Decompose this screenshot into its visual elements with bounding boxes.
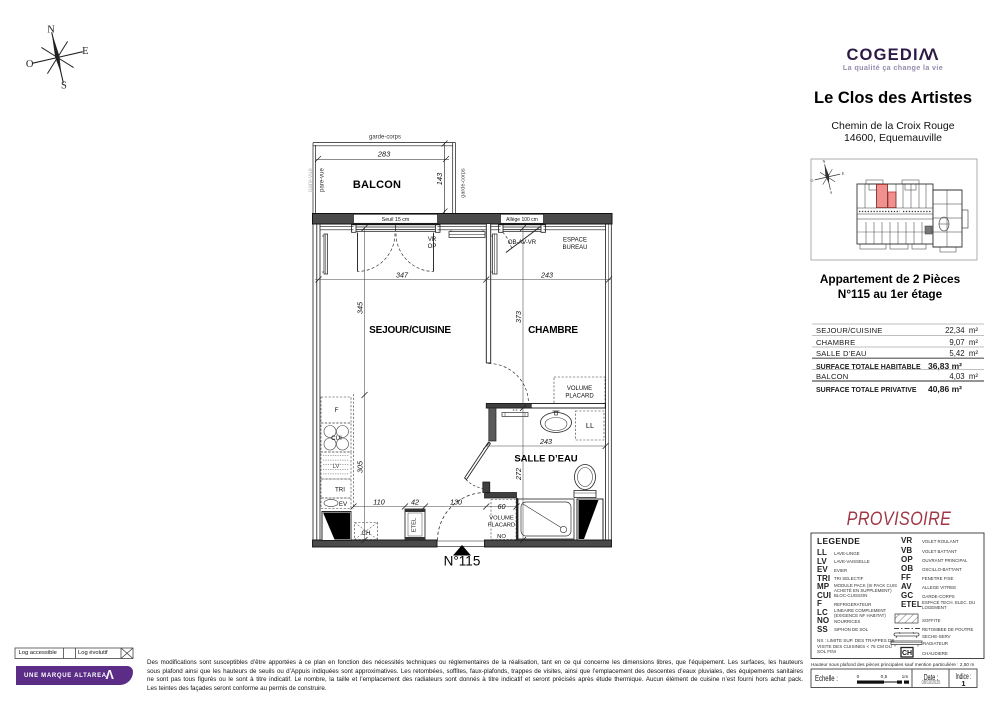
- svg-text:CHAMBRE: CHAMBRE: [528, 325, 578, 336]
- svg-text:143: 143: [435, 172, 444, 185]
- svg-text:O: O: [810, 178, 813, 183]
- svg-text:TRI: TRI: [335, 487, 345, 494]
- svg-text:garde-corps: garde-corps: [369, 135, 401, 141]
- svg-text:BALCON: BALCON: [353, 179, 401, 191]
- svg-text:N: N: [47, 25, 55, 36]
- svg-text:E: E: [82, 46, 88, 57]
- svg-text:OB-AV-VR: OB-AV-VR: [508, 240, 537, 246]
- svg-text:LV: LV: [332, 463, 340, 470]
- svg-text:ETEL: ETEL: [412, 517, 418, 532]
- svg-text:N: N: [822, 159, 825, 164]
- svg-text:CUI: CUI: [331, 435, 342, 442]
- svg-text:283: 283: [377, 150, 391, 159]
- svg-text:S: S: [830, 190, 832, 195]
- svg-text:CH: CH: [362, 530, 371, 537]
- svg-text:SEJOUR/CUISINE: SEJOUR/CUISINE: [369, 325, 451, 336]
- svg-text:110: 110: [373, 498, 384, 507]
- svg-text:347: 347: [396, 271, 409, 280]
- svg-text:60: 60: [498, 502, 506, 511]
- svg-text:PLACARD: PLACARD: [488, 523, 515, 529]
- svg-text:OP: OP: [428, 244, 437, 250]
- svg-text:s-s: s-s: [513, 408, 518, 412]
- svg-text:ESPACE: ESPACE: [563, 238, 587, 244]
- svg-text:EV: EV: [339, 501, 348, 508]
- svg-text:272: 272: [514, 468, 523, 481]
- svg-text:PLACARD: PLACARD: [565, 394, 594, 400]
- svg-text:373: 373: [514, 311, 523, 323]
- svg-text:130: 130: [450, 498, 462, 507]
- svg-text:O: O: [26, 59, 34, 70]
- svg-text:VR: VR: [428, 237, 437, 243]
- svg-text:N°115: N°115: [444, 554, 481, 569]
- svg-text:VOLUME: VOLUME: [567, 386, 592, 392]
- svg-text:BUREAU: BUREAU: [562, 245, 587, 251]
- svg-text:NO: NO: [497, 534, 506, 540]
- svg-text:pare-vue: pare-vue: [308, 168, 314, 192]
- svg-text:garde-corps: garde-corps: [461, 168, 467, 198]
- svg-text:0: 0: [857, 674, 860, 680]
- svg-text:LL: LL: [586, 421, 594, 430]
- svg-text:Seuil 15 cm: Seuil 15 cm: [382, 217, 410, 223]
- svg-text:S: S: [61, 80, 67, 91]
- svg-text:Allège 100 cm: Allège 100 cm: [506, 217, 538, 223]
- svg-text:SALLE D’EAU: SALLE D’EAU: [514, 454, 577, 465]
- svg-text:42: 42: [411, 498, 419, 507]
- svg-text:F: F: [335, 407, 339, 414]
- svg-text:E: E: [842, 171, 845, 176]
- svg-text:CH: CH: [902, 650, 912, 657]
- svg-text:0,5: 0,5: [881, 674, 888, 680]
- svg-text:243: 243: [540, 271, 553, 280]
- svg-text:305: 305: [356, 460, 365, 473]
- svg-text:243: 243: [539, 437, 552, 446]
- svg-text:pare-vue: pare-vue: [320, 168, 326, 192]
- svg-text:VOLUME: VOLUME: [489, 516, 514, 522]
- svg-text:1m: 1m: [902, 674, 909, 680]
- svg-text:345: 345: [356, 301, 365, 314]
